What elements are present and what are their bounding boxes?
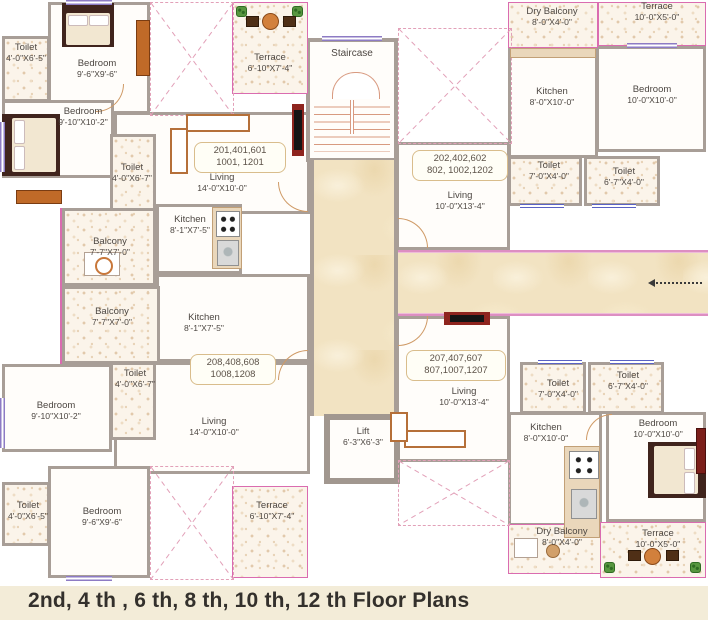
label-bedroom-207: Bedroom10'-0"X10'-0" [618,418,698,439]
label-toilet-207b: Toilet6'-7"X4'-0" [596,370,660,391]
window-icon [322,36,382,41]
window-icon [66,576,112,581]
sofa-icon [170,128,188,174]
table-icon [644,548,661,565]
label-dry-balcony-207: Dry Balcony8'-0"X4'-0" [520,526,604,547]
label-toilet-208a: Toilet4'-0"X6'-7" [108,368,162,389]
plant-icon [604,562,615,573]
window-sill-icon [592,204,636,208]
label-bedroom-201b: Bedroom9'-10"X10'-2" [40,106,126,127]
label-bedroom-208b: Bedroom9'-6"X9'-6" [64,506,140,527]
label-toilet-201a: Toilet4'-0"X6'-5" [3,42,49,63]
window-icon [0,398,5,448]
unit-box-202: 202,402,602 802, 1002,1202 [412,150,508,181]
window-icon [66,0,112,5]
unit-box-201: 201,401,601 1001, 1201 [194,142,286,173]
sink-icon [217,240,239,266]
label-terrace-208: Terrace6'-10"X7'-4" [234,500,310,521]
label-balcony-201a: Balcony7'-7"X7'-0" [76,236,144,257]
chair-icon [666,550,679,561]
label-balcony-201b: Balcony7'-7"X7'-0" [78,306,146,327]
window-sill-icon [610,360,654,364]
unit-box-208: 208,408,608 1008,1208 [190,354,276,385]
floor-plan: 201,401,601 1001, 1201 202,402,602 802, … [0,0,708,620]
tv-unit-icon [292,104,304,156]
label-bedroom-202: Bedroom10'-0"X10'-0" [612,84,692,105]
label-bedroom-208a: Bedroom9'-10"X10'-2" [14,400,98,421]
caption-band: 2nd, 4 th , 6 th, 8 th, 10 th, 12 th Flo… [0,586,708,620]
label-living-207: Living10'-0"X13'-4" [424,386,504,407]
floor-plan-caption: 2nd, 4 th , 6 th, 8 th, 10 th, 12 th Flo… [28,589,469,613]
label-dry-balcony-202: Dry Balcony8'-0"X4'-0" [510,6,594,27]
kitchen-counter [510,48,596,58]
plant-icon [690,562,701,573]
tv-unit-icon [444,312,490,325]
label-toilet-207a: Toilet7'-0"X4'-0" [526,378,590,399]
window-icon [0,122,5,172]
label-lift: Lift6'-3"X6'-3" [334,426,392,447]
label-toilet-202b: Toilet6'-7"X4'-0" [592,166,656,187]
void-x-icon [398,28,512,144]
label-staircase: Staircase [314,48,390,60]
label-bedroom-201a: Bedroom9'-6"X9'-6" [58,58,136,79]
window-icon [627,43,677,48]
stove-icon [569,451,599,479]
label-toilet-208b: Toilet4'-0"X6'-5" [4,500,52,521]
chair-icon [246,16,259,27]
table-icon [262,13,279,30]
label-living-201: Living14'-0"X10'-0" [180,172,264,193]
void-x-icon [150,466,234,580]
label-kitchen-201a: Kitchen8'-1"X7'-5" [158,214,222,235]
chair-icon [283,16,296,27]
sofa-icon [404,430,466,448]
lobby [310,160,398,416]
sink-icon [571,489,597,519]
sofa-icon [390,412,408,442]
label-living-202: Living10'-0"X13'-4" [420,190,500,211]
label-kitchen-207: Kitchen8'-0"X10'-0" [512,422,580,443]
label-terrace-201: Terrace6'-10"X7'-4" [234,52,306,73]
label-toilet-201b: Toilet4'-0"X6'-7" [106,162,158,183]
label-kitchen-201b: Kitchen8'-1"X7'-5" [170,312,238,333]
sofa-icon [186,114,250,132]
wardrobe-icon [16,190,62,204]
label-living-208: Living14'-0"X10'-0" [172,416,256,437]
void-x-icon [150,2,234,116]
bed-icon [62,3,114,47]
unit-box-207: 207,407,607 807,1007,1207 [406,350,506,381]
label-terrace-202: Terrace10'-0"X5'-0" [618,1,696,22]
lift-block [324,414,400,484]
kitchen-counter [564,446,600,538]
stair-arc [332,72,380,99]
label-toilet-202a: Toilet7'-0"X4'-0" [518,160,580,181]
label-kitchen-202: Kitchen8'-0"X10'-0" [518,86,586,107]
window-sill-icon [520,204,564,208]
stair-divider [350,100,354,134]
void-x-icon [398,460,510,526]
wardrobe-icon [136,20,150,76]
window-sill-icon [538,360,582,364]
corridor-direction-arrow-icon [648,278,702,288]
label-terrace-207: Terrace10'-0"X5'-0" [618,528,698,549]
chair-icon [628,550,641,561]
